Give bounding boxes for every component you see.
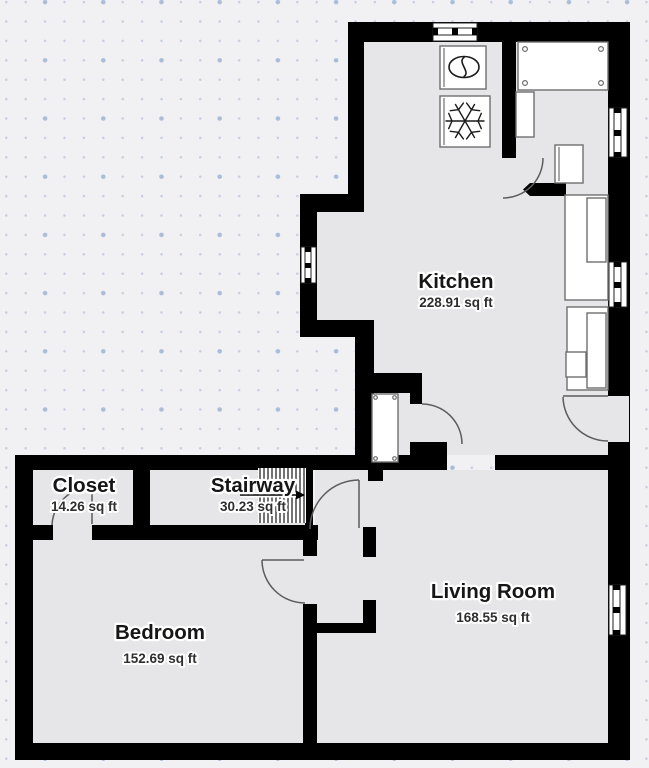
freezer-icon bbox=[440, 96, 490, 147]
wall-kitchen-door-stub bbox=[410, 393, 422, 404]
wall-counter-stub bbox=[523, 183, 566, 196]
closet-door-gap bbox=[53, 524, 92, 541]
window-kitchen-east-2 bbox=[609, 262, 627, 307]
wall-landing-east-upper bbox=[363, 527, 376, 557]
room-label-closet: Closet 14.26 sq ft bbox=[51, 474, 118, 514]
living-room-area: 168.55 sq ft bbox=[456, 610, 530, 625]
closet-name: Closet bbox=[53, 474, 116, 497]
floor-plan-canvas: Kitchen 228.91 sq ft Closet 14.26 sq ft … bbox=[0, 0, 649, 768]
wall-kitchen-south-left bbox=[355, 373, 422, 393]
kitchen-area: 228.91 sq ft bbox=[419, 295, 493, 310]
wall-landing-south bbox=[313, 623, 366, 633]
counter-east-upper bbox=[565, 195, 608, 300]
window-kitchen-east-1 bbox=[609, 108, 627, 157]
counter-north bbox=[518, 42, 608, 90]
kitchen-floor-west-extension bbox=[317, 212, 364, 321]
wall-closet-stairway-divider bbox=[133, 468, 150, 525]
room-label-kitchen: Kitchen 228.91 sq ft bbox=[418, 270, 493, 310]
wall-kitchen-north bbox=[348, 22, 630, 42]
room-label-bedroom: Bedroom 152.69 sq ft bbox=[115, 621, 205, 666]
dishwasher bbox=[516, 92, 534, 137]
wall-lower-block-north-right bbox=[495, 455, 630, 470]
stairway-name: Stairway bbox=[211, 474, 296, 497]
wall-west bbox=[15, 455, 33, 760]
window-kitchen-north bbox=[433, 23, 477, 41]
wall-south bbox=[15, 743, 630, 760]
wall-vestibule-west bbox=[355, 337, 374, 470]
floor-plan: Kitchen 228.91 sq ft Closet 14.26 sq ft … bbox=[0, 0, 649, 768]
window-livingroom-east bbox=[609, 585, 626, 635]
kitchen-name: Kitchen bbox=[418, 270, 493, 293]
living-room-name: Living Room bbox=[431, 580, 555, 603]
kitchen-exterior-door-gap bbox=[608, 396, 629, 442]
closet-area: 14.26 sq ft bbox=[51, 499, 118, 514]
wall-vestibule-south-block bbox=[410, 442, 447, 470]
stove-icon bbox=[440, 46, 486, 89]
stairway-area: 30.23 sq ft bbox=[220, 499, 287, 514]
window-kitchen-west bbox=[301, 247, 316, 283]
wall-kitchen-divider bbox=[502, 22, 516, 158]
room-label-stairway: Stairway 30.23 sq ft bbox=[211, 474, 296, 514]
wall-kitchen-west-upper bbox=[348, 22, 364, 212]
bedroom-door-gap bbox=[301, 556, 319, 604]
bedroom-area: 152.69 sq ft bbox=[123, 651, 197, 666]
counter-east-lower bbox=[566, 307, 608, 390]
oven bbox=[555, 145, 583, 183]
bedroom-name: Bedroom bbox=[115, 621, 205, 644]
vestibule-cabinet bbox=[372, 394, 398, 462]
kitchen-vestibule-floor bbox=[373, 390, 608, 455]
wall-kitchen-west-jog-lower bbox=[300, 320, 374, 337]
